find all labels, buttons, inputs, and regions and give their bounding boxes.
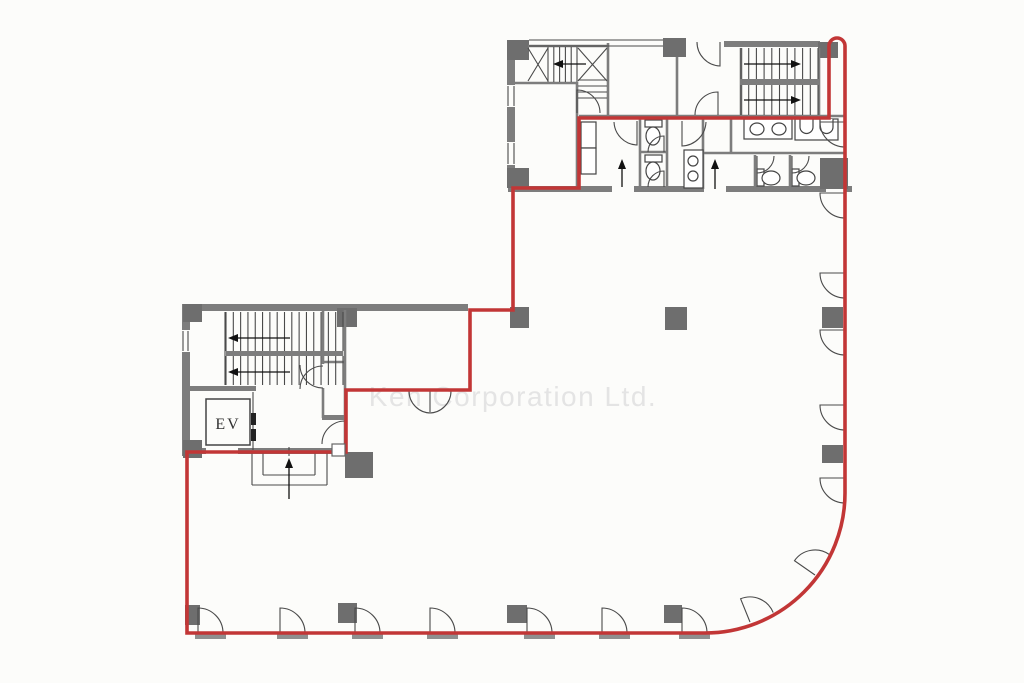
floor-plan: Ken Corporation Ltd. EV <box>0 0 1024 683</box>
watermark-text: Ken Corporation Ltd. <box>369 381 657 412</box>
elevator-label: EV <box>215 416 240 433</box>
floor-plan-svg: Ken Corporation Ltd. EV <box>0 0 1024 683</box>
